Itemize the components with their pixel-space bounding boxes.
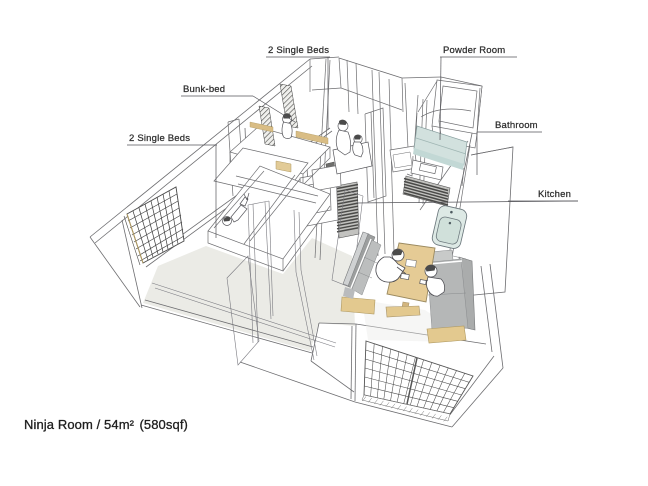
svg-text:Powder Room: Powder Room xyxy=(443,45,505,56)
svg-text:Kitchen: Kitchen xyxy=(538,189,571,200)
svg-text:Bunk-bed: Bunk-bed xyxy=(183,84,225,95)
svg-text:Ninja Room / 54m² (580sqf): Ninja Room / 54m² (580sqf) xyxy=(24,417,188,432)
svg-text:2 Single Beds: 2 Single Beds xyxy=(268,45,329,56)
svg-text:Bathroom: Bathroom xyxy=(495,120,538,131)
svg-text:2 Single Beds: 2 Single Beds xyxy=(129,133,190,144)
